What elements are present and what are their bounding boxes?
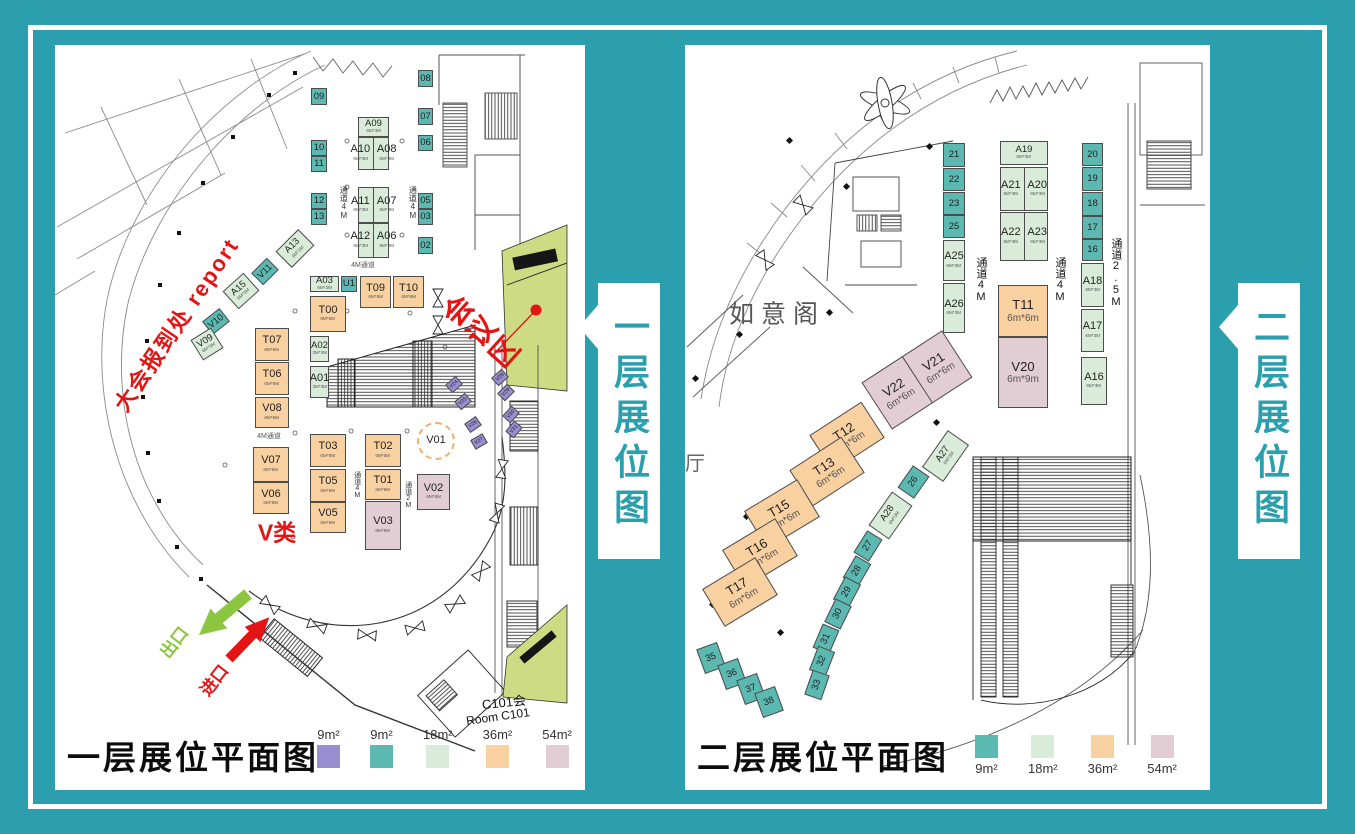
legend-item: 36m² (483, 727, 513, 768)
legend-label: 36m² (483, 727, 513, 742)
legend-label: 18m² (423, 727, 453, 742)
legend-label: 54m² (1147, 761, 1177, 776)
legend-label: 9m² (317, 727, 339, 742)
legend-swatch (317, 745, 340, 768)
annotation-floor1: 通道4M (408, 186, 417, 220)
annotation-floor1: 4M通道 (351, 262, 375, 270)
floor1-title: 一层展位平面图 (67, 731, 319, 779)
annotation-floor1: Room C101 (465, 706, 530, 728)
floor1-plan: 08090706A096M*3MA106M*3MA086M*3M10111213… (55, 45, 585, 790)
annotation-floor1: 通道2M (404, 481, 412, 509)
legend-item: 9m² (317, 727, 340, 768)
legend-swatch (975, 735, 998, 758)
legend-item: 18m² (423, 727, 453, 768)
legend-swatch (1031, 735, 1054, 758)
floor1-banner-label: 一层展位图 (603, 308, 655, 559)
floor2-title: 二层展位平面图 (697, 731, 949, 779)
annotation-floor2: 通道4M (1053, 257, 1065, 303)
annotation-floor2: 厅 (685, 454, 705, 476)
annotation-floor1: 进口 (197, 662, 232, 700)
annotation-floor1: 通道4M (353, 471, 361, 499)
annotation-floor1: 4M通道 (257, 433, 281, 441)
floor2-plan: 21222325A256M*3MA266M*3MA196M*3MA216M*3M… (685, 45, 1210, 790)
floor1-banner: 一层展位图 (598, 283, 660, 559)
annotation-floor1: V类 (258, 521, 296, 546)
annotation-floor1: 出口 (157, 624, 192, 662)
annotation-floor1: 大会报到处 report (110, 234, 244, 416)
legend-item: 9m² (975, 735, 998, 776)
legend-item: 9m² (370, 727, 393, 768)
legend-swatch (426, 745, 449, 768)
floor2-annotations: 如意阁厅通道4M通道4M通道2.5M (685, 45, 1210, 790)
floor2-legend: 9m²18m²36m²54m² (975, 735, 1177, 776)
legend-label: 36m² (1088, 761, 1118, 776)
annotation-floor1: 会议区 (434, 291, 524, 376)
legend-swatch (1091, 735, 1114, 758)
legend-label: 9m² (975, 761, 997, 776)
legend-swatch (1151, 735, 1174, 758)
legend-item: 18m² (1028, 735, 1058, 776)
legend-swatch (546, 745, 569, 768)
legend-item: 36m² (1088, 735, 1118, 776)
annotation-floor2: 通道2.5M (1109, 238, 1121, 308)
legend-label: 9m² (370, 727, 392, 742)
annotation-floor2: 通道4M (974, 257, 986, 303)
floor1-legend: 9m²9m²18m²36m²54m² (317, 727, 572, 768)
exhibition-floorplan-poster: 08090706A096M*3MA106M*3MA086M*3M10111213… (0, 0, 1355, 834)
floor2-banner-label: 二层展位图 (1243, 308, 1295, 559)
annotation-floor1: 通道4M (339, 186, 348, 220)
legend-label: 54m² (542, 727, 572, 742)
legend-item: 54m² (1147, 735, 1177, 776)
legend-item: 54m² (542, 727, 572, 768)
floor1-annotations: 大会报到处 report会议区V类出口进口C101会Room C101通道4M通… (55, 45, 585, 790)
annotation-floor2: 如意阁 (729, 302, 825, 329)
legend-swatch (486, 745, 509, 768)
legend-swatch (370, 745, 393, 768)
legend-label: 18m² (1028, 761, 1058, 776)
floor2-banner: 二层展位图 (1238, 283, 1300, 559)
